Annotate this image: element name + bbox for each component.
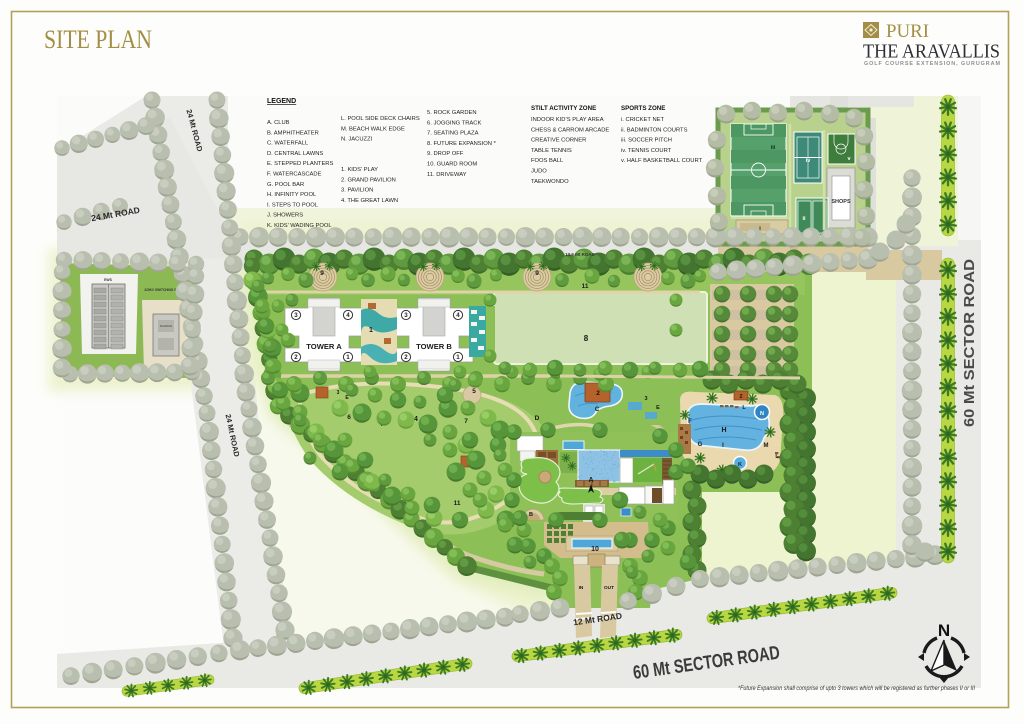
- svg-text:1: 1: [346, 354, 350, 361]
- svg-text:9. DROP OFF: 9. DROP OFF: [427, 151, 464, 157]
- svg-text:4: 4: [456, 312, 460, 319]
- svg-text:E. STEPPED PLANTERS: E. STEPPED PLANTERS: [267, 161, 333, 167]
- svg-text:8: 8: [584, 334, 589, 343]
- svg-text:10: 10: [591, 546, 599, 553]
- svg-text:ii: ii: [802, 216, 806, 222]
- svg-text:11: 11: [454, 500, 461, 507]
- svg-text:INDOOR KID’S PLAY AREA: INDOOR KID’S PLAY AREA: [531, 117, 604, 123]
- svg-text:SHOPS: SHOPS: [831, 199, 851, 205]
- svg-text:6: 6: [347, 414, 351, 421]
- svg-text:5: 5: [472, 388, 476, 395]
- svg-text:F. WATERCASCADE: F. WATERCASCADE: [267, 172, 322, 178]
- svg-text:A. CLUB: A. CLUB: [267, 120, 290, 126]
- svg-text:1: 1: [456, 354, 460, 361]
- svg-text:TAEKWONDO: TAEKWONDO: [531, 179, 569, 185]
- svg-text:M. BEACH WALK EDGE: M. BEACH WALK EDGE: [341, 126, 405, 132]
- svg-text:2: 2: [294, 354, 298, 361]
- svg-text:JUDO: JUDO: [531, 169, 547, 175]
- svg-text:EWS: EWS: [104, 278, 112, 282]
- svg-text:D. CENTRAL LAWNS: D. CENTRAL LAWNS: [267, 151, 323, 157]
- svg-text:IN: IN: [579, 585, 584, 591]
- svg-text:2: 2: [596, 390, 600, 397]
- svg-text:11: 11: [582, 283, 589, 290]
- svg-text:7: 7: [464, 418, 468, 425]
- svg-text:J. SHOWERS: J. SHOWERS: [267, 213, 303, 219]
- svg-text:N: N: [760, 411, 764, 417]
- svg-text:FOOS BALL: FOOS BALL: [531, 158, 564, 164]
- svg-text:SCHOOL: SCHOOL: [160, 324, 173, 328]
- svg-text:10. GUARD ROOM: 10. GUARD ROOM: [427, 162, 477, 168]
- svg-text:N: N: [938, 621, 950, 640]
- svg-text:9: 9: [535, 270, 539, 277]
- svg-text:E: E: [656, 405, 660, 411]
- svg-text:SITE PLAN: SITE PLAN: [44, 25, 152, 54]
- svg-text:SPORTS ZONE: SPORTS ZONE: [621, 105, 665, 112]
- svg-text:i. CRICKET NET: i. CRICKET NET: [621, 117, 665, 123]
- svg-text:CREATIVE CORNER: CREATIVE CORNER: [531, 138, 586, 144]
- svg-text:4. THE GREAT LAWN: 4. THE GREAT LAWN: [341, 198, 398, 204]
- svg-text:6. JOGGING TRACK: 6. JOGGING TRACK: [427, 120, 481, 126]
- svg-text:H: H: [721, 427, 726, 434]
- svg-text:v. HALF BASKETBALL COURT: v. HALF BASKETBALL COURT: [621, 158, 703, 164]
- svg-text:H. INFINITY POOL: H. INFINITY POOL: [267, 192, 317, 198]
- svg-text:C: C: [595, 407, 600, 413]
- svg-text:THE ARAVALLIS: THE ARAVALLIS: [863, 42, 1000, 63]
- svg-text:1. KIDS’ PLAY: 1. KIDS’ PLAY: [341, 167, 378, 173]
- svg-text:3. PAVILION: 3. PAVILION: [341, 188, 373, 194]
- svg-text:*Future Expansion shall compri: *Future Expansion shall comprise of upto…: [738, 685, 975, 692]
- svg-text:60 Mt SECTOR ROAD: 60 Mt SECTOR ROAD: [961, 259, 978, 427]
- svg-text:D: D: [535, 415, 540, 422]
- svg-text:F: F: [688, 419, 692, 425]
- svg-text:3: 3: [337, 390, 340, 396]
- svg-text:LEGEND: LEGEND: [267, 98, 296, 105]
- svg-text:iii: iii: [771, 145, 776, 151]
- svg-text:11. DRIVEWAY: 11. DRIVEWAY: [427, 172, 467, 178]
- svg-text:iv. TENNIS COURT: iv. TENNIS COURT: [621, 148, 672, 154]
- svg-text:M: M: [764, 443, 769, 449]
- svg-text:ii. BADMINTON COURTS: ii. BADMINTON COURTS: [621, 127, 688, 133]
- svg-text:K. KIDS’ WADING POOL: K. KIDS’ WADING POOL: [267, 223, 332, 229]
- svg-text:CHESS & CARROM ARCADE: CHESS & CARROM ARCADE: [531, 127, 609, 133]
- svg-text:4: 4: [346, 312, 350, 319]
- svg-text:9: 9: [320, 270, 324, 277]
- svg-text:3: 3: [644, 396, 647, 402]
- svg-text:8. FUTURE EXPANSION *: 8. FUTURE EXPANSION *: [427, 141, 497, 147]
- svg-text:1: 1: [369, 327, 373, 334]
- svg-text:2: 2: [404, 354, 408, 361]
- svg-text:B. AMPHITHEATER: B. AMPHITHEATER: [267, 130, 319, 136]
- svg-text:TOWER B: TOWER B: [416, 342, 452, 351]
- svg-text:I. STEPS TO POOL: I. STEPS TO POOL: [267, 202, 319, 208]
- svg-text:L. POOL SIDE DECK CHAIRS: L. POOL SIDE DECK CHAIRS: [341, 116, 420, 122]
- svg-text:N. JACUZZI: N. JACUZZI: [341, 137, 373, 143]
- svg-text:OUT: OUT: [604, 585, 614, 591]
- svg-text:2: 2: [739, 394, 742, 400]
- svg-text:iii. SOCCER PITCH: iii. SOCCER PITCH: [621, 138, 672, 144]
- svg-text:C. WATERFALL: C. WATERFALL: [267, 141, 309, 147]
- svg-text:K: K: [738, 462, 742, 468]
- svg-text:2. GRAND PAVILION: 2. GRAND PAVILION: [341, 177, 396, 183]
- svg-text:PURI: PURI: [886, 22, 929, 42]
- svg-text:A: A: [588, 477, 593, 484]
- svg-text:TABLE TENNIS: TABLE TENNIS: [531, 148, 572, 154]
- svg-text:G. POOL BAR: G. POOL BAR: [267, 182, 304, 188]
- svg-text:5. ROCK GARDEN: 5. ROCK GARDEN: [427, 110, 477, 116]
- svg-text:GOLF COURSE EXTENSION, GURUGRA: GOLF COURSE EXTENSION, GURUGRAM: [864, 61, 1001, 67]
- svg-text:13.6 Mt ROAD: 13.6 Mt ROAD: [565, 252, 596, 257]
- svg-text:3: 3: [404, 312, 408, 319]
- svg-text:TOWER A: TOWER A: [306, 342, 342, 351]
- svg-text:G: G: [698, 442, 703, 448]
- svg-text:3: 3: [294, 312, 298, 319]
- svg-text:4: 4: [414, 416, 418, 423]
- svg-text:7. SEATING PLAZA: 7. SEATING PLAZA: [427, 131, 479, 137]
- svg-text:STILT ACTIVITY ZONE: STILT ACTIVITY ZONE: [531, 105, 596, 112]
- svg-text:B: B: [529, 512, 533, 518]
